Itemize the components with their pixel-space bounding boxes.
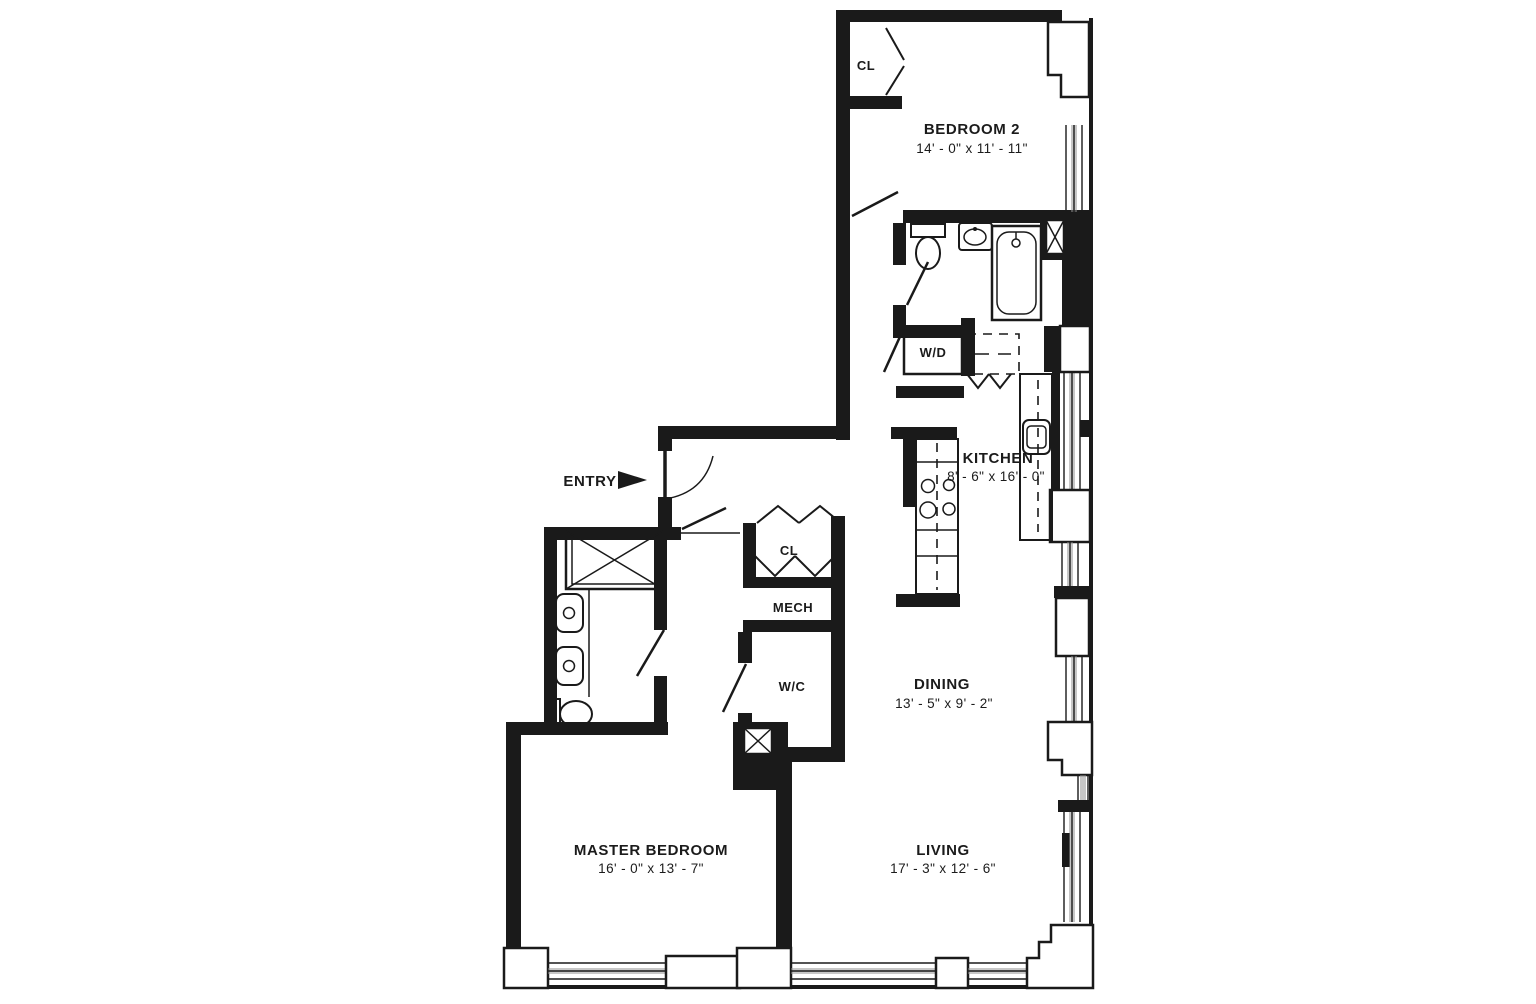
sink — [556, 594, 583, 632]
bedroom2-door — [852, 192, 898, 216]
kitchen-sink — [1023, 420, 1050, 454]
window-band — [1064, 372, 1080, 490]
floor-plan-page: BEDROOM 2 14' - 0" x 11' - 11" KITCHEN 8… — [0, 0, 1536, 1004]
window-band — [1078, 775, 1088, 800]
hall-closet-bifold-bottom — [755, 556, 835, 576]
stove-burner — [943, 503, 955, 515]
wc-door — [723, 664, 746, 712]
room-label-kitchen: KITCHEN — [963, 450, 1034, 467]
room-dims-kitchen: 8' - 6" x 16' - 0" — [947, 469, 1045, 484]
room-dims-bedroom2: 14' - 0" x 11' - 11" — [916, 141, 1028, 156]
room-dims-dining: 13' - 5" x 9' - 2" — [895, 696, 993, 711]
window-band — [1062, 542, 1078, 586]
entry-label: ENTRY — [563, 473, 616, 490]
linen-closet — [1046, 220, 1064, 254]
stove-burner — [922, 480, 935, 493]
entry-arrow-icon — [618, 471, 647, 489]
label-mech: MECH — [773, 600, 813, 615]
floor-plan-canvas: BEDROOM 2 14' - 0" x 11' - 11" KITCHEN 8… — [0, 0, 1536, 1004]
master-bath-door — [637, 630, 664, 676]
bedroom2-closet-bifold — [886, 28, 904, 95]
hall-door — [672, 508, 740, 533]
sink — [959, 223, 992, 250]
label-wc: W/C — [779, 679, 806, 694]
bottom-facade-windows — [504, 925, 1093, 988]
entry-annotation: ENTRY — [563, 471, 647, 490]
stove-burner — [920, 502, 936, 518]
room-label-living: LIVING — [916, 842, 970, 859]
window-band — [791, 963, 936, 979]
room-label-bedroom2: BEDROOM 2 — [924, 121, 1020, 138]
entry-door — [665, 451, 713, 499]
label-washer-dryer: W/D — [920, 345, 947, 360]
window-band — [1066, 125, 1082, 212]
bathtub — [992, 226, 1041, 320]
bathroom2-fixtures — [911, 220, 1064, 320]
kitchen-range-counter — [916, 439, 958, 594]
window-band — [968, 963, 1028, 979]
window-band — [548, 963, 666, 979]
master-bath-fixtures — [547, 531, 663, 729]
pantry-bifold — [967, 374, 1011, 388]
room-label-master-bedroom: MASTER BEDROOM — [574, 842, 728, 859]
room-dims-living: 17' - 3" x 12' - 6" — [890, 861, 996, 876]
room-dims-master-bedroom: 16' - 0" x 13' - 7" — [598, 861, 704, 876]
closet-doors — [755, 28, 1011, 576]
doors — [637, 192, 928, 712]
label-closet-hall: CL — [780, 543, 798, 558]
hall-closet-bifold-top — [757, 506, 841, 523]
sink — [556, 647, 583, 685]
room-label-dining: DINING — [914, 676, 970, 693]
window-band — [1066, 656, 1082, 722]
label-closet-bedroom2: CL — [857, 58, 875, 73]
kitchen-counters — [916, 374, 1052, 594]
service-chase — [733, 722, 788, 790]
